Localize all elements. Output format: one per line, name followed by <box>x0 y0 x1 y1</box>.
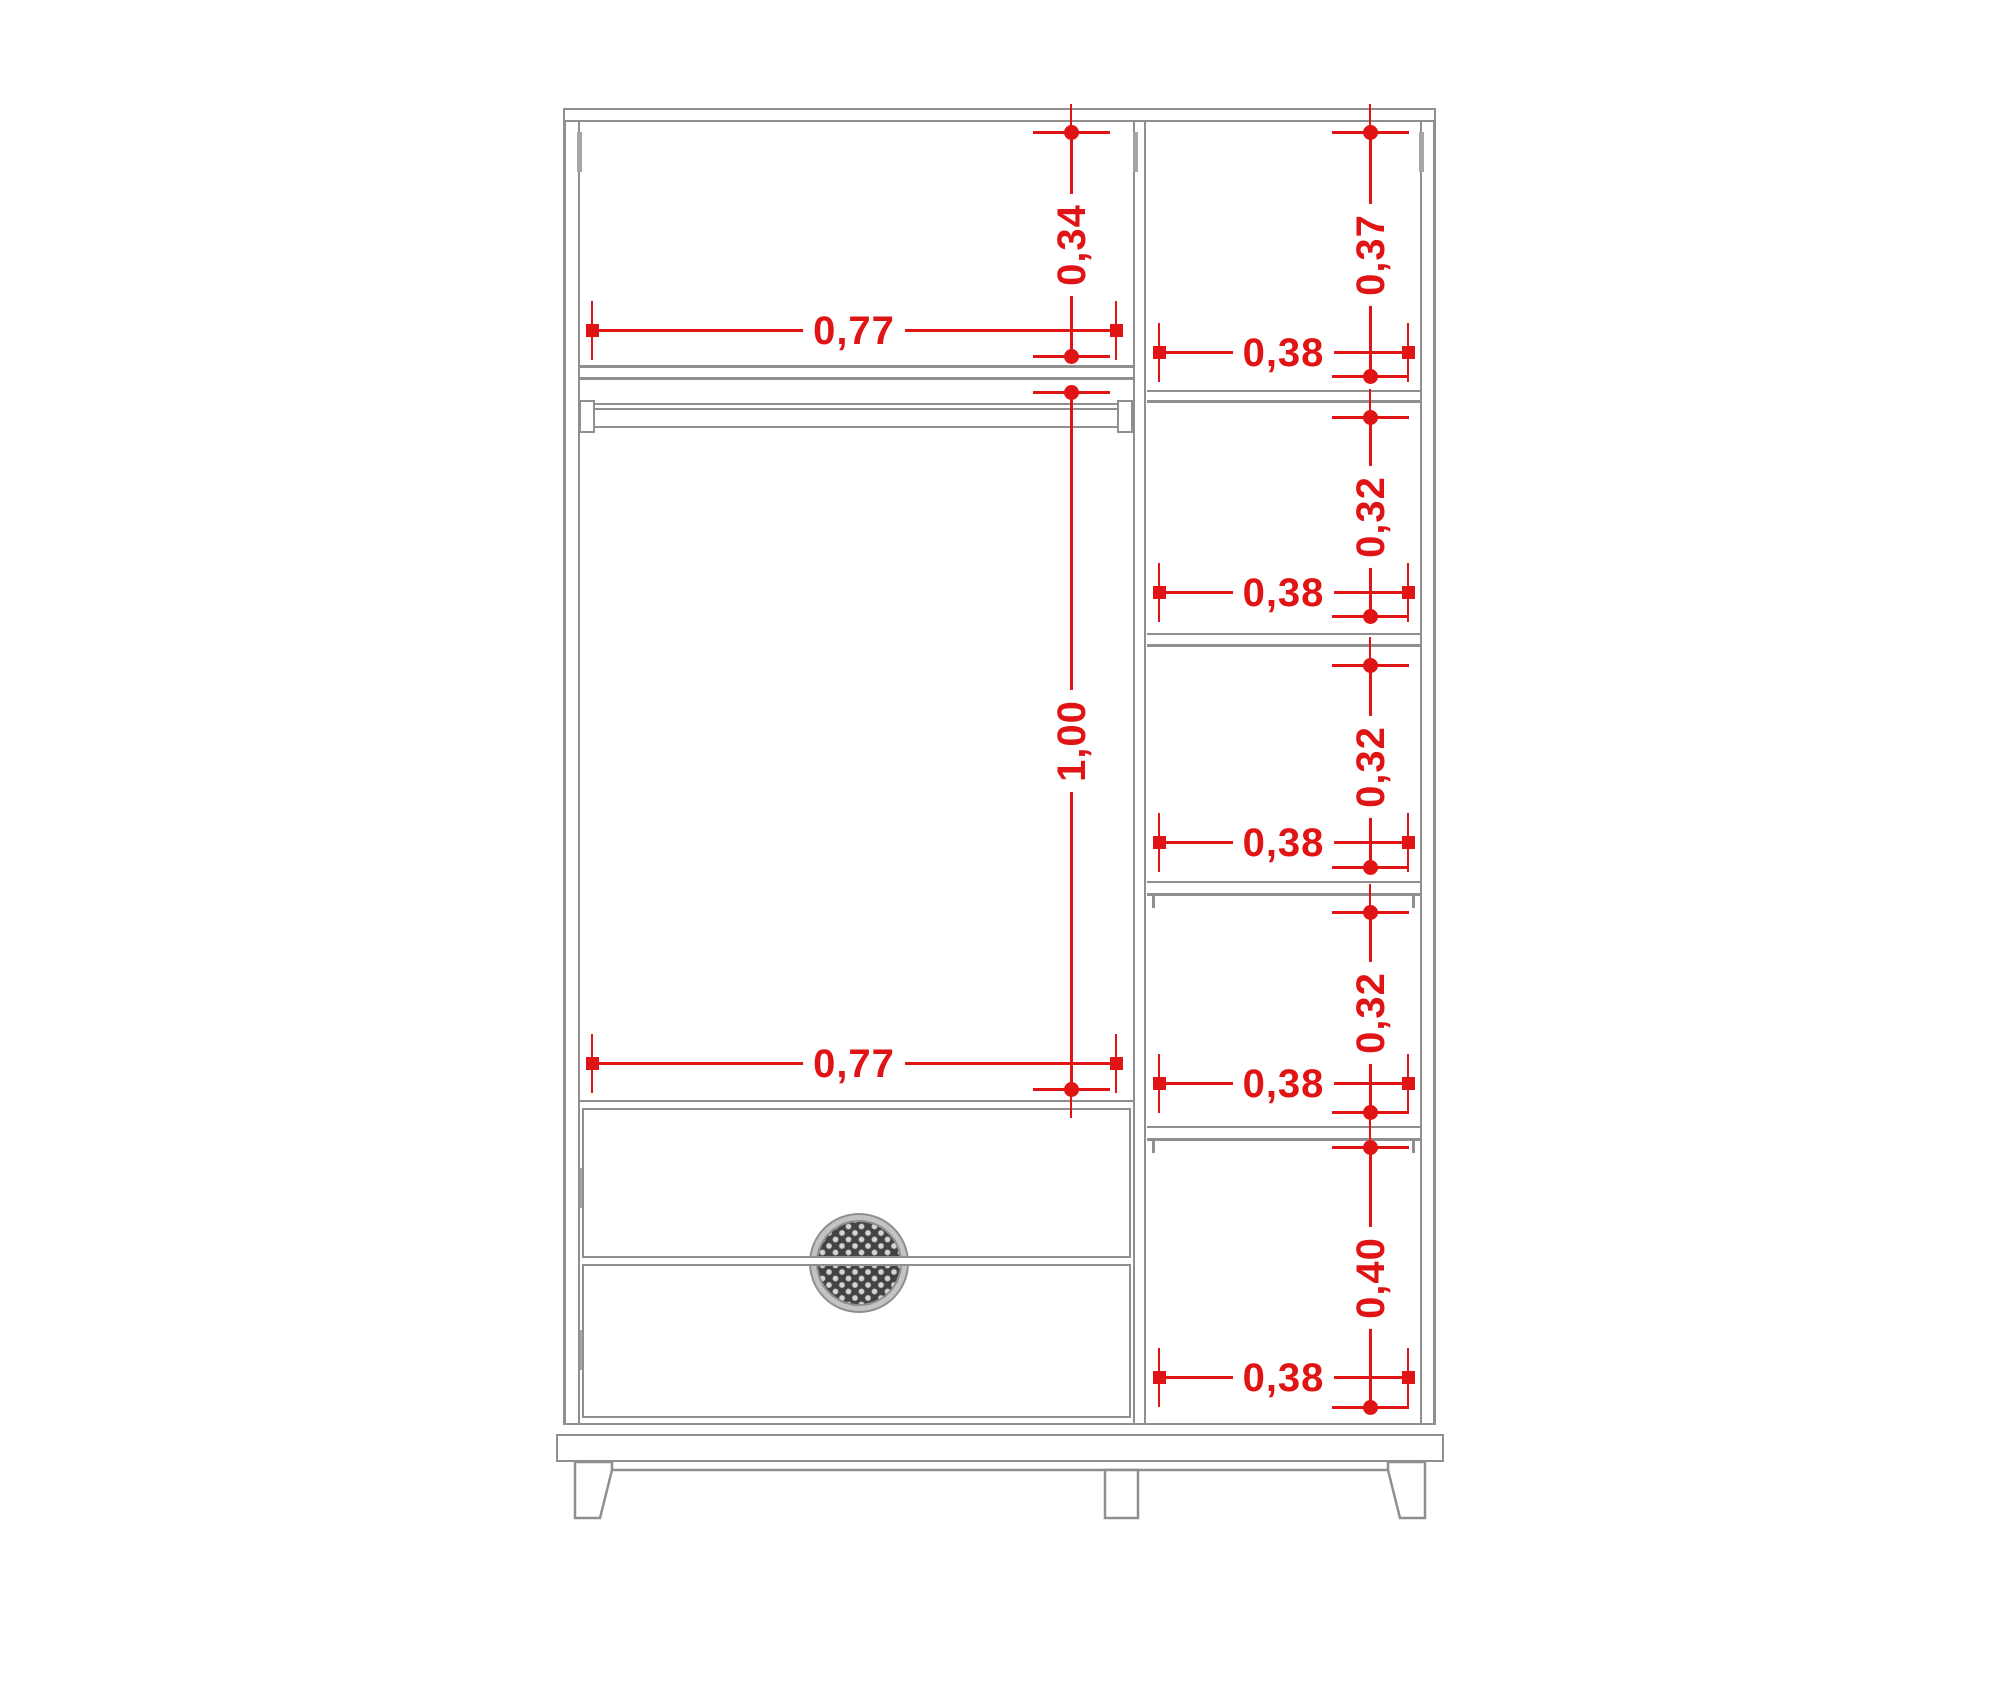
top-panel <box>563 108 1436 122</box>
dim-label: 1,00 <box>1051 690 1093 792</box>
dim-tick <box>1115 1034 1117 1093</box>
left-shelf-line <box>580 377 1133 380</box>
left-wall-inner <box>578 122 580 1423</box>
dim-right-comp3-width: 0,38 <box>1159 841 1408 844</box>
dim-tick <box>1407 323 1409 382</box>
dim-right-comp4-width: 0,38 <box>1159 1082 1408 1085</box>
dim-label: 0,77 <box>803 310 905 352</box>
right-shelf-line <box>1147 1138 1420 1141</box>
dim-left-bottom-width: 0,77 <box>592 1062 1116 1065</box>
right-shelf-line <box>1147 644 1420 647</box>
dim-end-marker <box>1363 369 1378 384</box>
dim-end-marker <box>1363 1105 1378 1120</box>
dim-label: 0,34 <box>1051 194 1093 296</box>
dim-label: 0,38 <box>1233 332 1335 374</box>
center-divider-right-line <box>1144 122 1146 1423</box>
dim-label: 0,32 <box>1350 962 1392 1064</box>
dim-label: 0,77 <box>803 1043 905 1085</box>
dim-left-top-width: 0,77 <box>592 329 1116 332</box>
dim-end-marker <box>1064 125 1079 140</box>
right-shelf-line <box>1147 893 1420 896</box>
dim-end-marker <box>1363 410 1378 425</box>
dim-label: 0,38 <box>1233 1357 1335 1399</box>
shelf-notch <box>1152 896 1155 908</box>
dim-tick <box>1407 563 1409 622</box>
right-shelf-line <box>1147 400 1420 403</box>
dim-label: 0,40 <box>1350 1227 1392 1329</box>
dim-tick <box>1115 301 1117 360</box>
dim-end-marker <box>1363 125 1378 140</box>
shelf-notch <box>1152 1141 1155 1153</box>
dim-tick <box>1158 323 1160 382</box>
rod-end-cap-right <box>1117 400 1133 433</box>
rod-support-line <box>580 403 1133 405</box>
left-shelf-line <box>580 365 1133 368</box>
dim-right-comp2-height: 0,32 <box>1369 417 1372 617</box>
hinge-mark <box>577 132 582 172</box>
right-wall-inner <box>1420 122 1422 1423</box>
dim-tick <box>1407 813 1409 872</box>
dim-tick <box>1158 1348 1160 1407</box>
left-wall-outer <box>563 122 566 1423</box>
wardrobe-technical-drawing: 0,77 0,34 1,00 0,77 0,37 0,3 <box>0 0 2000 1685</box>
hinge-mark <box>1419 132 1424 172</box>
dim-label: 0,32 <box>1350 466 1392 568</box>
right-shelf-line <box>1147 390 1420 392</box>
dim-tick <box>591 1034 593 1093</box>
dim-left-top-height: 0,34 <box>1070 132 1073 357</box>
left-leg <box>575 1462 612 1518</box>
dim-end-marker <box>1064 349 1079 364</box>
rod-end-cap-left <box>579 400 595 433</box>
dim-tick <box>591 301 593 360</box>
dim-end-marker <box>1363 609 1378 624</box>
hanging-rod <box>586 408 1125 428</box>
dim-tick <box>1158 1054 1160 1113</box>
drawer-gap-line <box>805 1256 913 1266</box>
dim-end-marker <box>1363 1140 1378 1155</box>
drawer-section-separator <box>580 1100 1133 1102</box>
dim-right-comp2-width: 0,38 <box>1159 591 1408 594</box>
dim-right-comp5-height: 0,40 <box>1369 1147 1372 1408</box>
dim-tick <box>1407 1054 1409 1113</box>
dim-label: 0,32 <box>1350 716 1392 818</box>
center-divider-left-line <box>1133 122 1135 1423</box>
shelf-notch <box>1412 1141 1415 1153</box>
dim-left-main-height: 1,00 <box>1070 392 1073 1090</box>
dim-label: 0,38 <box>1233 1063 1335 1105</box>
middle-leg <box>1105 1470 1138 1518</box>
right-wall-outer <box>1433 122 1436 1423</box>
right-shelf-line <box>1147 1126 1420 1128</box>
dim-end-marker <box>1363 860 1378 875</box>
dim-tick <box>1070 1091 1072 1118</box>
dim-tick <box>1158 813 1160 872</box>
bottom-panel-line <box>563 1423 1436 1425</box>
dim-right-comp5-width: 0,38 <box>1159 1376 1408 1379</box>
hinge-mark <box>1133 132 1138 172</box>
dim-end-marker <box>1363 905 1378 920</box>
dim-label: 0,38 <box>1233 822 1335 864</box>
dim-label: 0,37 <box>1350 204 1392 306</box>
dim-tick <box>1158 563 1160 622</box>
dim-label: 0,38 <box>1233 572 1335 614</box>
dim-right-comp3-height: 0,32 <box>1369 665 1372 868</box>
dim-right-comp1-width: 0,38 <box>1159 351 1408 354</box>
right-leg <box>1388 1462 1425 1518</box>
dim-end-marker <box>1064 385 1079 400</box>
dim-right-comp1-height: 0,37 <box>1369 132 1372 377</box>
right-shelf-line <box>1147 881 1420 883</box>
dim-end-marker <box>1363 658 1378 673</box>
dim-tick <box>1407 1348 1409 1407</box>
shelf-notch <box>1412 896 1415 908</box>
right-shelf-line <box>1147 633 1420 635</box>
dim-end-marker <box>1363 1400 1378 1415</box>
legs <box>540 1455 1460 1525</box>
